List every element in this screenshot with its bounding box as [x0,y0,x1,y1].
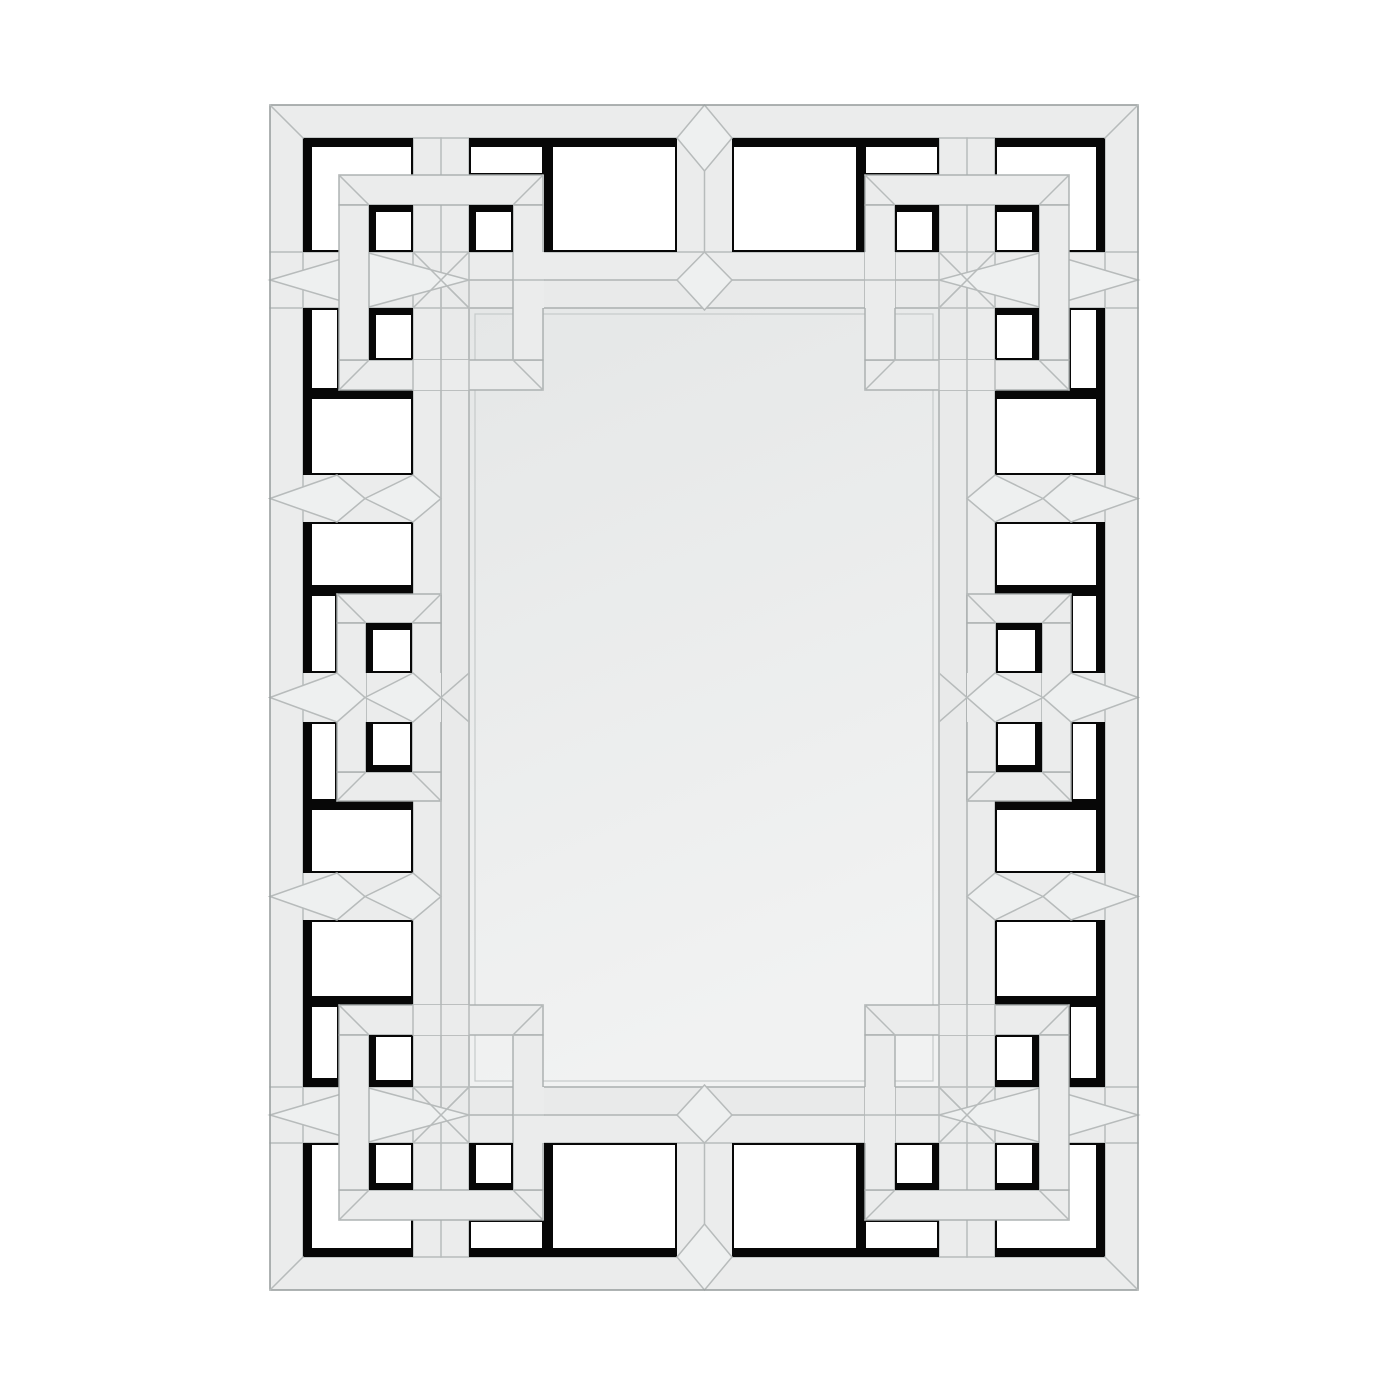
cutout-hole [376,1145,411,1183]
glass-surface [469,308,939,1087]
product-photo [0,0,1400,1400]
cutout-hole [998,724,1035,765]
cutout-hole [1073,724,1096,799]
cutout-hole [312,810,411,871]
cutout-hole [997,1037,1032,1080]
cutout-hole [312,724,335,799]
cutout-hole [373,630,410,671]
cutout-hole [1071,310,1096,388]
cutout-hole [553,1145,675,1248]
cutout-hole [471,1222,542,1248]
cutout-hole [997,922,1096,996]
cutout-hole [998,630,1035,671]
cutout-hole [997,399,1096,473]
wall-mirror-image [0,0,1400,1400]
mirror-glass [441,280,967,1115]
cutout-hole [734,1145,856,1248]
cutout-hole [866,1222,937,1248]
cutout-hole [734,147,856,250]
cutout-hole [476,212,511,250]
cutout-hole [997,810,1096,871]
cutout-hole [312,922,411,996]
cutout-hole [312,524,411,585]
cutout-hole [373,724,410,765]
cutout-hole [997,1145,1032,1183]
cutout-hole [376,315,411,358]
cutout-hole [897,1145,932,1183]
cutout-hole [1073,596,1096,671]
cutout-hole [376,212,411,250]
cutout-hole [312,1007,337,1078]
cutout-hole [866,147,937,173]
cutout-hole [376,1037,411,1080]
cutout-hole [997,212,1032,250]
cutout-hole [312,596,335,671]
cutout-hole [997,315,1032,358]
cutout-hole [312,310,337,388]
cutout-hole [553,147,675,250]
cutout-hole [1071,1007,1096,1078]
cutout-hole [897,212,932,250]
cutout-hole [476,1145,511,1183]
cutout-hole [997,524,1096,585]
cutout-hole [312,399,411,473]
cutout-hole [471,147,542,173]
